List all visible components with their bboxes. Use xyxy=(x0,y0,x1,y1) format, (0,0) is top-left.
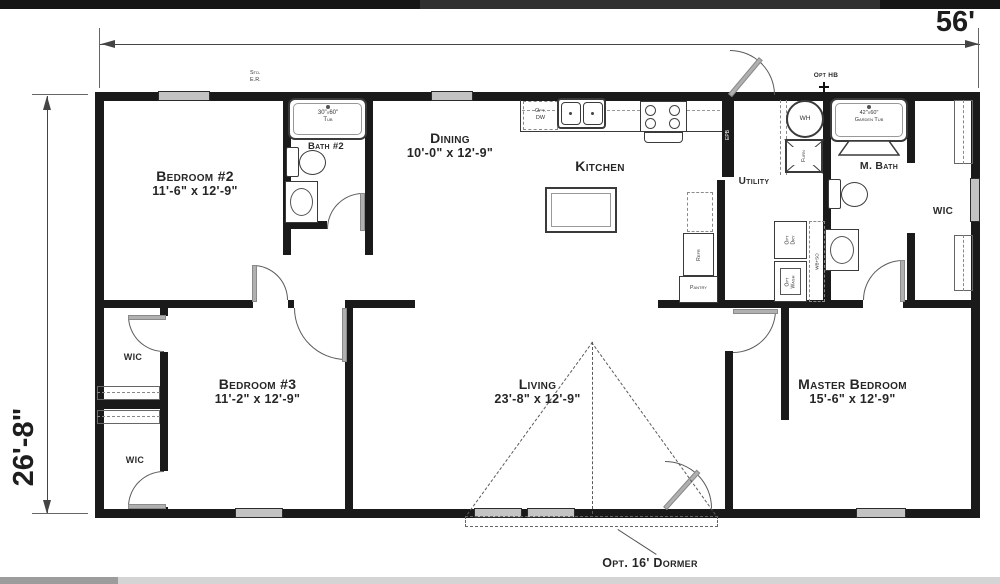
furnace-label: Furn xyxy=(801,150,807,162)
master-name: Master Bedroom xyxy=(770,376,935,392)
washer-label: Opt Wash xyxy=(784,275,796,288)
opt-hb-label: Opt HB xyxy=(806,72,846,79)
wic-right-name: WIC xyxy=(933,206,953,217)
dining-dims: 10'-0" x 12'-9" xyxy=(395,146,505,160)
top-dim-tick-left xyxy=(99,28,100,88)
wic-top-label: WIC xyxy=(118,352,148,362)
epb-label: EPB xyxy=(725,129,731,139)
water-heater-label: WH xyxy=(786,115,824,122)
stove-burner-1 xyxy=(645,105,656,116)
window-dining-top xyxy=(431,91,473,101)
floorplan-canvas: 56' 26'-8" xyxy=(0,0,1000,584)
refrigerator: Refr xyxy=(683,233,714,276)
mbath-label: M. Bath xyxy=(848,160,910,172)
garden-tub-label: 42"x60" Garden Tub xyxy=(832,110,906,123)
wall-mbath-wic-upper xyxy=(907,92,915,163)
top-dim-arrow-left xyxy=(101,40,115,48)
wall-pantry-right xyxy=(717,180,725,308)
kitchen-island-inner xyxy=(551,193,611,227)
kitchen-label: Kitchen xyxy=(550,158,650,174)
wic-bottom-label: WIC xyxy=(120,455,150,465)
std-er-label: Std. E.R. xyxy=(250,70,278,83)
top-dim-arrow-right xyxy=(965,40,979,48)
top-dimension-line xyxy=(100,44,980,45)
bottom-crop-bar xyxy=(0,577,1000,584)
left-dimension-line xyxy=(47,96,48,514)
wall-hall-mid xyxy=(345,300,415,308)
master-door-leaf xyxy=(733,309,778,314)
overall-width-label: 56' xyxy=(880,6,975,39)
master-dims: 15'-6" x 12'-9" xyxy=(770,392,935,406)
vault-line-left xyxy=(467,342,593,515)
bath2-sink xyxy=(290,188,313,216)
dryer-label: Opt Dry xyxy=(784,235,796,244)
mbath-toilet-bowl xyxy=(841,182,868,207)
wh-closet-front-dash-1 xyxy=(780,100,781,175)
bath2-tub-label: 30"x60" Tub xyxy=(292,110,364,124)
wall-hall-left xyxy=(95,300,253,308)
washer-inner: Opt Wash xyxy=(780,268,801,295)
wic-left-shelf-top-dash xyxy=(97,392,160,393)
bath2-door-leaf xyxy=(360,193,365,231)
bedroom2-dims: 11'-6" x 12'-9" xyxy=(110,184,280,198)
wall-hall-stub xyxy=(288,300,294,308)
overall-depth-label: 26'-8" xyxy=(8,387,46,507)
window-bedroom2-top xyxy=(158,91,210,101)
mbath-door-leaf xyxy=(900,260,905,302)
bedroom2-name: Bedroom #2 xyxy=(110,168,280,184)
bedroom3-name: Bedroom #3 xyxy=(170,376,345,392)
wall-wic-divider xyxy=(95,400,168,409)
window-wic-right xyxy=(970,178,980,222)
wic-left-shelf-bottom-dash xyxy=(97,416,160,417)
bedroom3-dims: 11'-2" x 12'-9" xyxy=(170,392,345,406)
utility-name: Utility xyxy=(739,176,770,187)
top-dim-tick-right xyxy=(978,28,979,88)
vault-line-right xyxy=(591,342,716,515)
bedroom3-door-leaf xyxy=(342,308,347,362)
stove-burner-4 xyxy=(669,118,680,129)
wall-living-master xyxy=(725,351,733,515)
garden-tub-faucet xyxy=(867,105,871,109)
bedroom2-door-arc xyxy=(253,265,288,300)
sink-drain-right xyxy=(591,112,594,115)
wic-top-door-leaf xyxy=(128,315,166,320)
bedroom2-door-leaf xyxy=(252,265,257,302)
stove-front xyxy=(644,132,683,143)
bath2-name: Bath #2 xyxy=(308,141,344,152)
wic-bottom-door-leaf xyxy=(128,504,166,509)
dormer-outline xyxy=(465,516,718,527)
stove-burner-2 xyxy=(645,118,656,129)
garden-tub-step xyxy=(838,140,900,156)
left-dim-tick-top xyxy=(32,94,88,95)
vault-line-center xyxy=(592,342,593,514)
wall-mbath-wic-lower xyxy=(907,233,915,308)
bath2-label: Bath #2 xyxy=(296,141,356,152)
mbath-sink xyxy=(830,236,854,264)
living-label: Living 23'-8" x 12'-9" xyxy=(465,376,610,406)
bath2-tub-faucet xyxy=(326,105,330,109)
furnace-label-wrap: Furn xyxy=(792,147,816,165)
bedroom2-label: Bedroom #2 11'-6" x 12'-9" xyxy=(110,168,280,198)
window-master-bottom xyxy=(856,508,906,518)
stove-burner-3 xyxy=(669,105,680,116)
bedroom3-label: Bedroom #3 11'-2" x 12'-9" xyxy=(170,376,345,406)
washbox-label: WB+SO xyxy=(815,253,820,269)
bath2-toilet-bowl xyxy=(299,150,326,175)
mbath-toilet-tank xyxy=(828,179,841,209)
dining-label: Dining 10'-0" x 12'-9" xyxy=(395,130,505,160)
dishwasher-label: Opt. DW xyxy=(523,108,558,121)
kitchen-name: Kitchen xyxy=(550,158,650,174)
dining-name: Dining xyxy=(395,130,505,146)
mbath-name: M. Bath xyxy=(860,160,898,172)
washbox-strip: WB+SO xyxy=(809,221,825,302)
wic-left-shelf-bottom xyxy=(97,410,160,424)
dormer-leader-line xyxy=(617,529,656,555)
bath2-door-arc xyxy=(327,193,363,229)
kitchen-counter-left-edge xyxy=(520,100,521,131)
refrigerator-label: Refr xyxy=(696,249,702,261)
wic-right-label: WIC xyxy=(926,206,960,217)
bottom-crop-bar-dark xyxy=(0,577,118,584)
kitchen-counter-edge xyxy=(520,131,722,132)
epb-wall-label-wrap: EPB xyxy=(722,92,734,177)
pantry-label: Pantry xyxy=(679,285,718,291)
wic-right-rod-bottom-dash xyxy=(963,235,964,291)
wic-top-name: WIC xyxy=(124,352,142,362)
living-name: Living xyxy=(465,376,610,392)
master-label: Master Bedroom 15'-6" x 12'-9" xyxy=(770,376,935,406)
bedroom3-door-arc xyxy=(294,308,346,360)
wic-left-shelf-top xyxy=(97,386,160,400)
wall-wic-col-mid xyxy=(160,352,168,471)
dormer-label: Opt. 16' Dormer xyxy=(575,556,725,570)
left-dim-arrow-up xyxy=(43,96,51,110)
wic-top-door-arc xyxy=(128,316,164,352)
master-door-arc xyxy=(733,310,776,353)
mbath-door-arc xyxy=(863,260,903,300)
dryer-box: Opt Dry xyxy=(774,221,807,259)
refr-upper-cabinet xyxy=(687,192,713,232)
opt-hb-cross-h xyxy=(819,86,829,88)
window-bedroom3-bottom xyxy=(235,508,283,518)
wic-bottom-name: WIC xyxy=(126,455,144,465)
wic-bottom-door-arc xyxy=(128,471,164,507)
living-dims: 23'-8" x 12'-9" xyxy=(465,392,610,406)
utility-label: Utility xyxy=(728,176,780,187)
sink-drain-left xyxy=(569,112,572,115)
wic-right-rod-top-dash xyxy=(963,100,964,164)
left-dim-tick-bottom xyxy=(32,513,88,514)
top-crop-bar-light xyxy=(420,0,880,9)
